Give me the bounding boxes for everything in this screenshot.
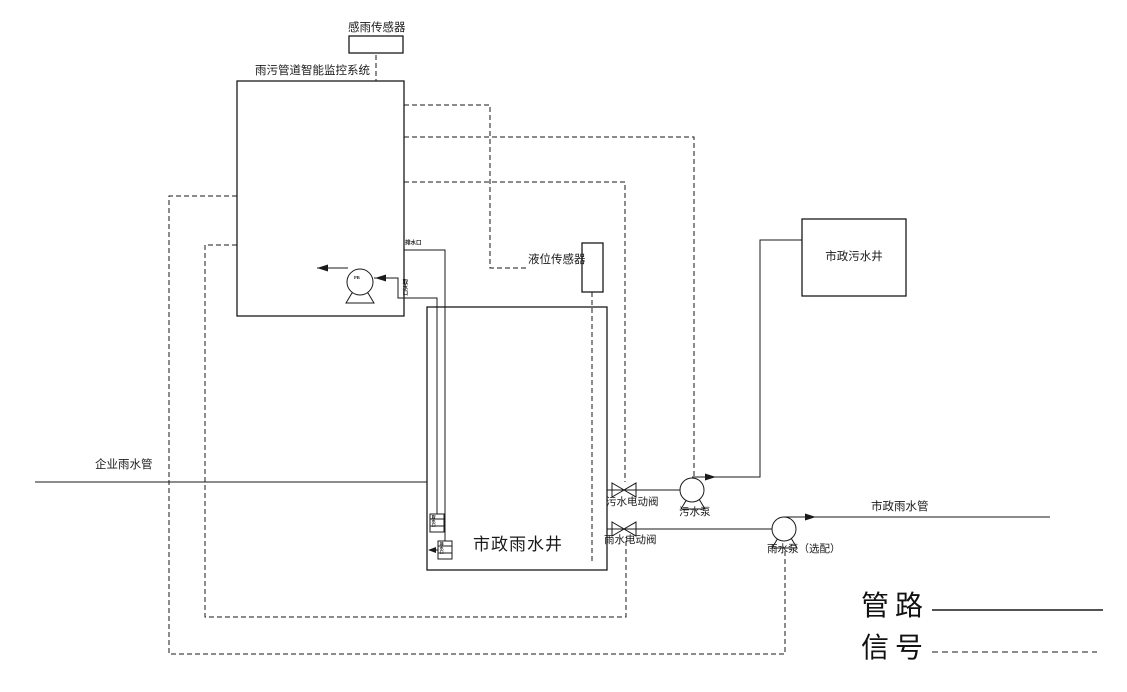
arrow-sewage-discharge <box>705 474 716 481</box>
rain-valve-label: 雨水电动阀 <box>604 535 657 547</box>
signal-lines <box>169 55 785 654</box>
rain-well-label: 市政雨水井 <box>473 535 563 555</box>
boxes <box>237 36 906 570</box>
level-sensor-box <box>582 243 603 292</box>
diagram-canvas <box>0 0 1127 692</box>
strainer-lower-label: 排水口 <box>439 542 444 554</box>
inner-pump-tag: PB <box>354 275 360 280</box>
legend-lines <box>932 610 1103 652</box>
arrow-intake <box>375 275 386 282</box>
pipe-sewage-discharge <box>692 240 802 477</box>
outlet-port-label: 排水口 <box>405 240 422 246</box>
system-box-label: 雨污管道智能监控系统 <box>255 65 370 78</box>
signal-level-sensor <box>404 105 526 268</box>
sewage-pump-label: 污水泵 <box>679 507 711 519</box>
system-box <box>237 81 404 316</box>
sewage-pump-symbol <box>680 478 705 509</box>
signal-rain-pump <box>169 196 785 654</box>
rain-sensor-label: 感雨传感器 <box>348 22 406 35</box>
rain-well-box <box>427 307 607 570</box>
intake-port-label: 取水口 <box>401 279 407 296</box>
enterprise-rain-pipe-label: 企业雨水管 <box>95 459 153 472</box>
flow-arrows <box>317 265 816 554</box>
legend-signal-label: 信号 <box>861 633 929 665</box>
level-sensor-label: 液位传感器 <box>528 254 586 267</box>
rain-sensor-box <box>349 36 403 53</box>
signal-rain-valve <box>205 245 626 617</box>
arrow-inner-discharge <box>317 265 328 272</box>
inner-pump-symbol <box>346 269 374 303</box>
arrow-strainer-lower <box>428 547 436 553</box>
municipal-rain-pipe-label: 市政雨水管 <box>871 501 929 514</box>
pipe-outlet <box>404 250 445 541</box>
strainer-upper-label: 取水口 <box>431 515 436 527</box>
legend-pipeline-label: 管路 <box>861 591 929 623</box>
rain-pump-label: 雨水泵（选配） <box>767 544 841 556</box>
sewage-valve-label: 污水电动阀 <box>606 497 659 509</box>
sewage-well-label: 市政污水井 <box>802 219 906 296</box>
arrow-municipal-rain <box>805 514 816 521</box>
piping-diagram: 感雨传感器 雨污管道智能监控系统 液位传感器 市政污水井 市政雨水井 企业雨水管… <box>0 0 1127 692</box>
